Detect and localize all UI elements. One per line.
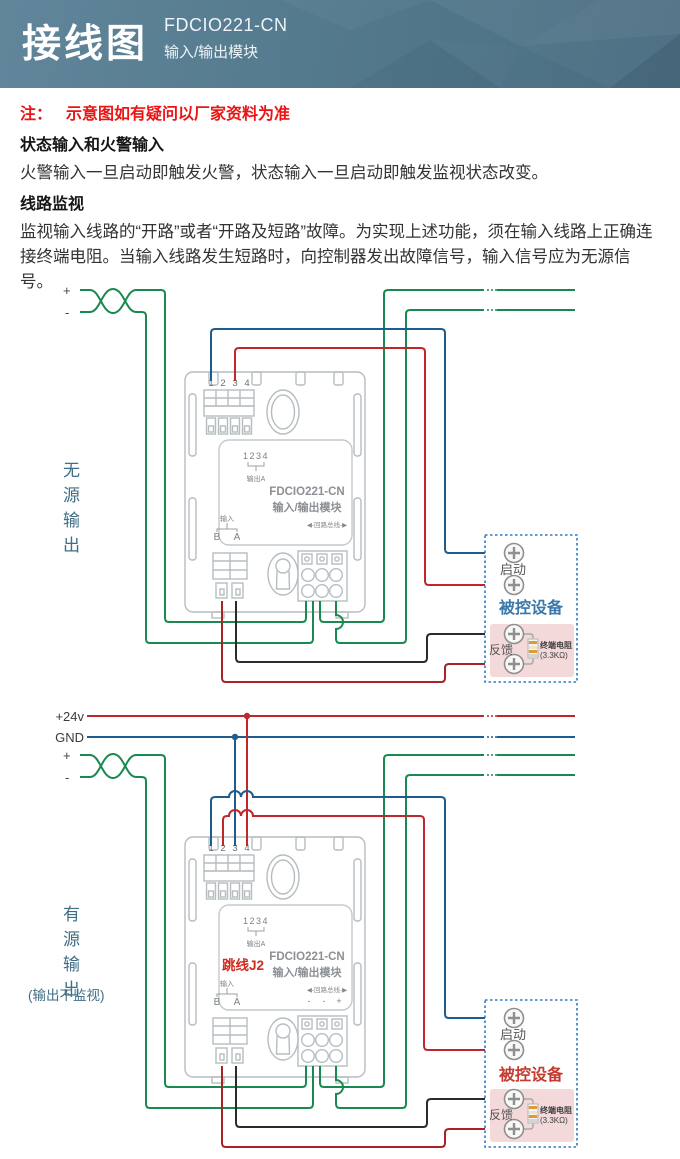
- d2-start-label: 启动: [500, 1027, 526, 1042]
- note-text: 示意图如有疑问以厂家资料为准: [66, 106, 290, 123]
- description-block: 注：示意图如有疑问以厂家资料为准 状态输入和火警输入 火警输入一旦启动即触发火警…: [0, 88, 680, 295]
- d2-resistor-value-label: (3.3KΩ): [540, 1116, 568, 1125]
- product-name: 输入/输出模块: [164, 41, 288, 62]
- d2-feedback-label: 反馈: [489, 1108, 513, 1122]
- module-1-output-a-label: 输出A: [247, 474, 266, 483]
- note-prefix: 注：: [20, 106, 52, 123]
- product-model: FDCIO221-CN: [164, 15, 288, 36]
- power-gnd-junction-dot: [232, 734, 238, 740]
- wiring-diagram-canvas: 1 2 3 4 1234 输出A FDCIO221-CN 输入/输出模块 输入 …: [0, 280, 680, 1159]
- module-2-polarity-minus2: -: [323, 996, 326, 1006]
- d2-feedback-terminal-top: [505, 1090, 524, 1109]
- controlled-device-2: 启动 被控设备 反馈 终端电阻 (3.3KΩ): [485, 1000, 577, 1147]
- module-1-input-a-label: A: [234, 532, 241, 543]
- disclaimer-note: 注：示意图如有疑问以厂家资料为准: [20, 100, 660, 124]
- power-24v-break-dots: [487, 715, 497, 717]
- d2-terminal-resistor-icon: [528, 1104, 538, 1123]
- d2-start-terminal-bottom: [505, 1041, 524, 1060]
- d2-device-title: 被控设备: [499, 1065, 564, 1084]
- module-1-input-b-label: B: [214, 532, 221, 543]
- d1-plus-label: +: [63, 283, 71, 298]
- d1-device-title: 被控设备: [499, 598, 564, 617]
- module-2-name-label: 输入/输出模块: [272, 965, 342, 979]
- section-body-inputs: 火警输入一旦启动即触发火警，状态输入一旦启动即触发监视状态改变。: [20, 161, 660, 186]
- section-heading-line-monitor: 线路监视: [20, 190, 660, 214]
- controlled-device-1: 启动 被控设备 反馈 终端电阻 (3.3KΩ): [485, 535, 577, 682]
- power-gnd-label: GND: [55, 730, 84, 745]
- d1-feedback-terminal-bottom: [505, 655, 524, 674]
- module-2-loop-bus-label: ◀-回路总线-▶: [307, 985, 347, 994]
- module-2-input-a-label: A: [234, 997, 241, 1008]
- d2-feedback-wire-dark-red: [222, 1066, 504, 1147]
- power-24v-label: +24v: [55, 709, 84, 724]
- module-2-output-terminals-label: 1234: [243, 916, 269, 926]
- module-1-terminal-2-label: 2: [220, 378, 225, 389]
- header-banner: 接线图 FDCIO221-CN 输入/输出模块: [0, 0, 680, 88]
- module-1-name-label: 输入/输出模块: [272, 500, 342, 514]
- d1-start-terminal-top: [505, 544, 524, 563]
- d2-minus-label: -: [65, 770, 69, 785]
- module-2-jumper-j2-label: 跳线J2: [222, 957, 264, 973]
- page-title: 接线图: [22, 13, 148, 69]
- d1-resistor-name-label: 终端电阻: [539, 640, 572, 650]
- d2-wire-break-dots: [487, 754, 497, 776]
- module-1-output-terminals-label: 1234: [243, 451, 269, 461]
- d1-start-terminal-bottom: [505, 576, 524, 595]
- module-1-input-label: 输入: [220, 514, 234, 523]
- d1-start-label: 启动: [500, 562, 526, 577]
- d1-resistor-value-label: (3.3KΩ): [540, 651, 568, 660]
- module-2-model-label: FDCIO221-CN: [269, 951, 344, 963]
- module-2-input-b-label: B: [214, 997, 221, 1008]
- module-2-input-label: 输入: [220, 979, 234, 988]
- d2-start-terminal-top: [505, 1009, 524, 1028]
- module-1-terminal-4-label: 4: [244, 378, 249, 389]
- module-2-polarity-minus1: -: [308, 996, 311, 1006]
- wiring-diagram-page: { "header": {"title": "接线图", "model": "F…: [0, 0, 680, 1159]
- d1-feedback-wire-dark-red: [222, 601, 504, 682]
- power-gnd-break-dots: [487, 736, 497, 738]
- section-heading-inputs: 状态输入和火警输入: [20, 131, 660, 155]
- d1-feedback-label: 反馈: [489, 643, 513, 657]
- d1-feedback-terminal-top: [505, 625, 524, 644]
- d1-minus-label: -: [65, 305, 69, 320]
- module-2-polarity-plus: +: [336, 996, 341, 1006]
- d2-plus-label: +: [63, 748, 71, 763]
- power-24v-junction-dot: [244, 713, 250, 719]
- d1-terminal-resistor-icon: [528, 639, 538, 658]
- d2-resistor-name-label: 终端电阻: [539, 1105, 572, 1115]
- module-2-output-a-label: 输出A: [247, 939, 266, 948]
- d2-feedback-terminal-bottom: [505, 1120, 524, 1139]
- module-1-model-label: FDCIO221-CN: [269, 486, 344, 498]
- module-1-loop-bus-label: ◀-回路总线-▶: [307, 520, 347, 529]
- d1-wire-break-dots: [487, 289, 497, 311]
